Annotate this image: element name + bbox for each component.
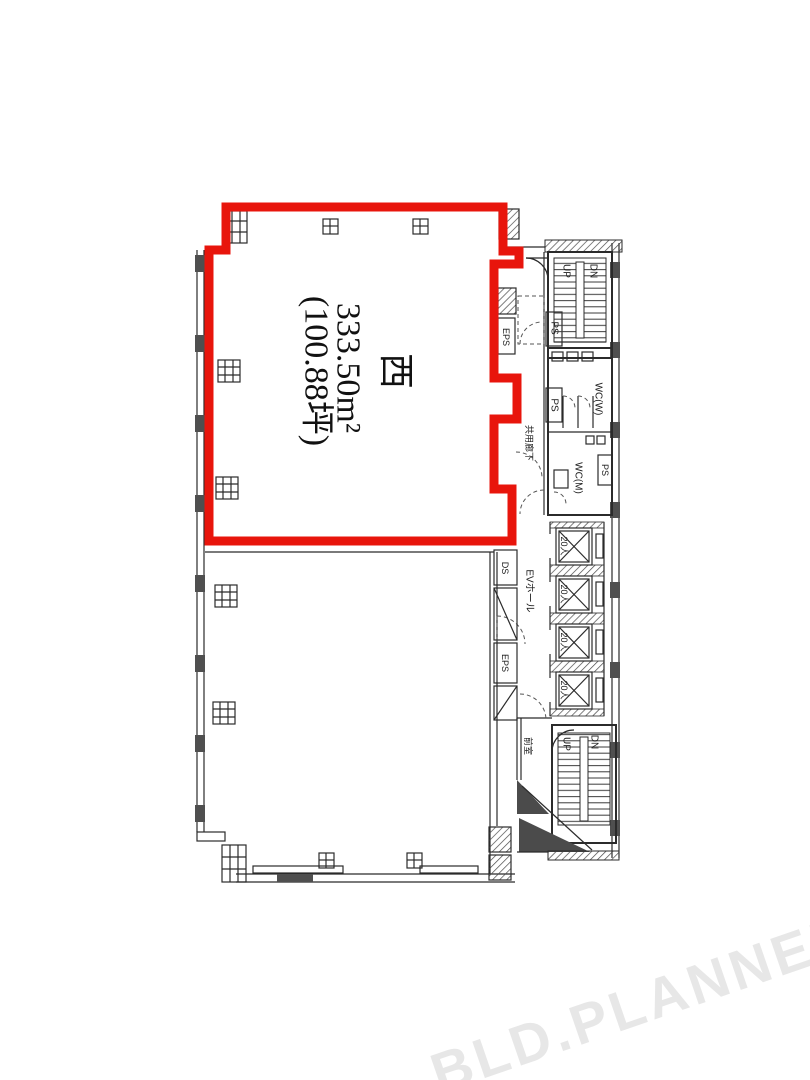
shaft-box <box>498 288 516 314</box>
stair-down-label: DN <box>589 735 600 749</box>
floor-plan-svg: BLD.PLANNER <box>0 0 810 1080</box>
ds-label: DS <box>500 562 510 575</box>
ev-capacity-label: 20人 <box>559 584 569 603</box>
wc-women-label: WC(W) <box>593 383 604 416</box>
anteroom-label: 前室 <box>523 737 534 755</box>
ev-capacity-label: 20人 <box>559 680 569 699</box>
eps-label: EPS <box>500 654 510 672</box>
stair-up-label: UP <box>561 737 572 751</box>
shaft-box <box>489 855 511 880</box>
unit-name: 西 <box>376 353 416 389</box>
ps-label: PS <box>549 398 560 412</box>
ev-capacity-label: 20人 <box>559 536 569 555</box>
unit-area-tsubo: (100.88坪) <box>298 296 335 446</box>
shaft-box <box>489 827 511 852</box>
ps-label: PS <box>600 464 610 476</box>
ev-capacity-label: 20人 <box>559 632 569 651</box>
eps-label: EPS <box>501 328 511 346</box>
wc-men-label: WC(M) <box>573 462 584 494</box>
stair-up-label: UP <box>561 264 572 278</box>
ev-hall-label: EVホール <box>524 569 536 612</box>
stair-down-label: DN <box>588 264 599 278</box>
